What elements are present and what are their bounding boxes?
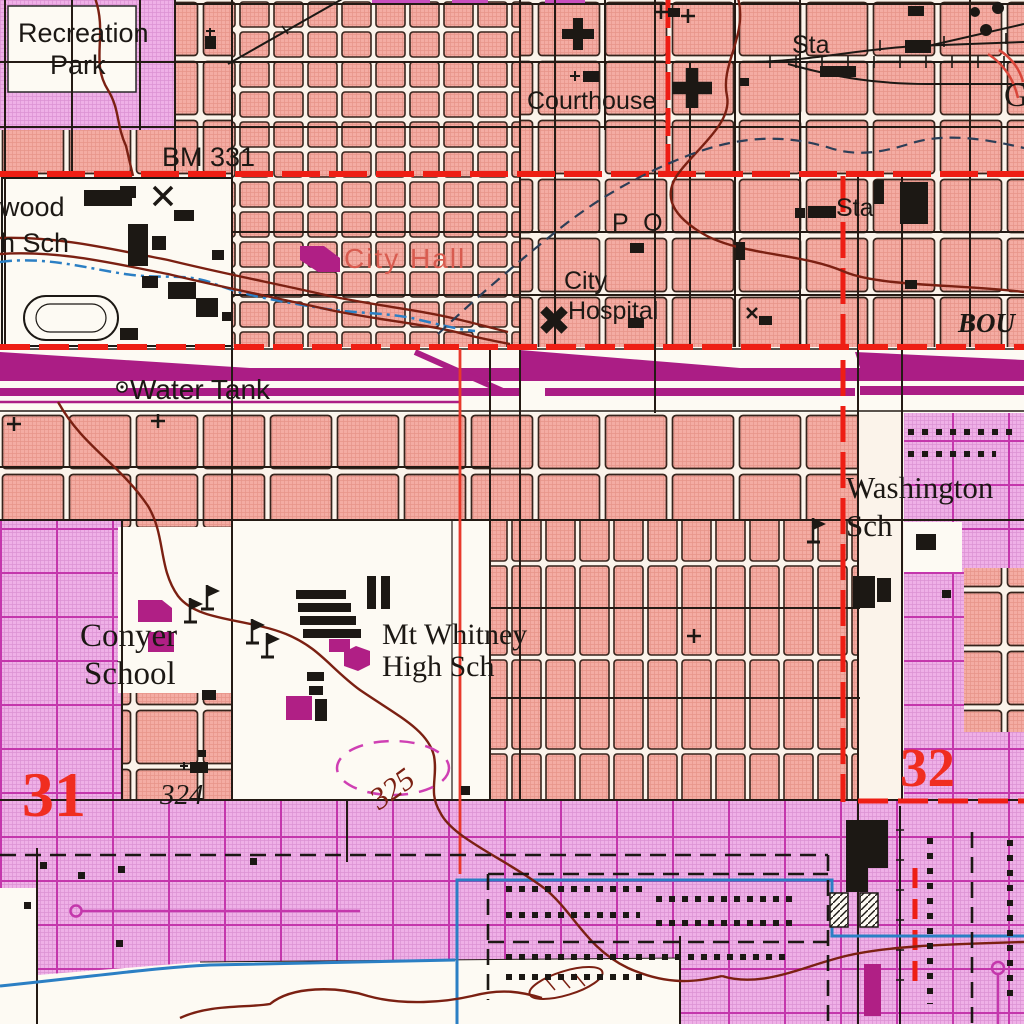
label-water-tank: Water Tank [130,374,271,405]
label-school-left: h Sch [0,228,69,258]
washington-school-building [853,576,875,608]
label-city-hospital: Hospital [568,297,658,325]
label-station-right: Sta [836,194,874,222]
water-tank-icon [117,382,127,392]
label-city-hall: City Hall [344,243,466,274]
church-icon [205,28,216,49]
label-washington-sch: Sch [846,508,893,543]
label-courthouse: Courthouse [527,87,656,115]
label-washington-sch: Washington [846,470,994,505]
depot-building [905,40,931,53]
label-mt-whitney: Mt Whitney [382,618,527,651]
label-recreation-park: Recreation [18,18,149,48]
label-benchmark-331: BM 331 [162,142,255,172]
label-conyer-school: School [84,656,176,692]
spot-elevation-324: 324 [159,779,204,811]
label-city-hospital: City [564,267,608,295]
label-partial-g: G [1004,77,1024,114]
label-recreation-park: Park [50,50,106,80]
station-building [900,182,928,224]
label-conyer-school: Conyer [80,618,177,654]
section-number-32: 32 [900,737,955,798]
label-mt-whitney: High Sch [382,650,495,683]
label-boulevard: BOU [957,308,1017,338]
label-post-office: P O [612,209,667,237]
topo-map-canvas: Recreation Park Courthouse Sta G BM 331 … [0,0,1024,1024]
topo-map-svg: Recreation Park Courthouse Sta G BM 331 … [0,0,1024,1024]
section-number-31: 31 [22,759,86,830]
label-school-left: wood [0,192,65,222]
label-station-top: Sta [792,31,830,59]
running-track [24,296,118,340]
